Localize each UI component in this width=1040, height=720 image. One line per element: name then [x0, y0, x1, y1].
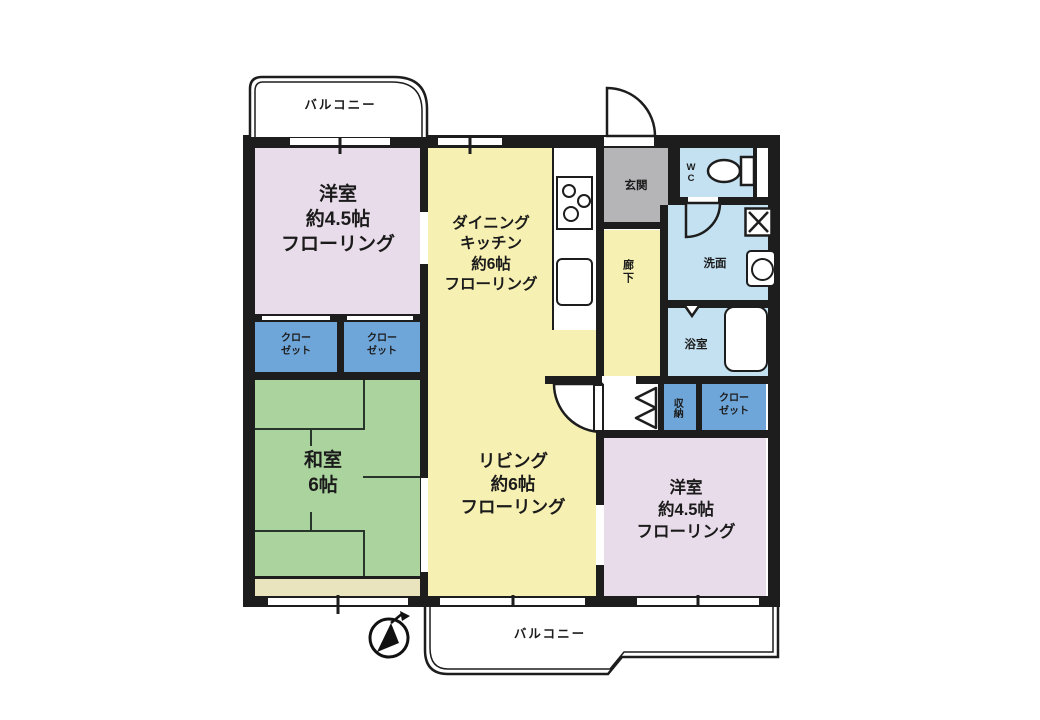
room-size: 約6帖	[428, 255, 554, 275]
kitchen-sink-icon	[556, 258, 593, 306]
living-door-panel	[593, 384, 604, 432]
wc-label: WC	[684, 155, 697, 191]
corridor-label: 廊下	[620, 250, 635, 294]
room-size: 約4.5帖	[608, 500, 764, 522]
closet-nw-opening	[262, 314, 330, 322]
bedroom-se-label: 洋室 約4.5帖 フローリング	[608, 478, 764, 543]
room-size: 6帖	[262, 473, 384, 498]
wall-closet-mid	[337, 314, 344, 378]
wall-entrance-step	[604, 222, 668, 229]
room-name: 洋室	[608, 478, 764, 500]
doorway-corridor-pocket	[602, 376, 636, 384]
closet-label-line: ゼット	[255, 345, 337, 358]
room-floor: フローリング	[608, 522, 764, 544]
closet-n-opening	[347, 314, 413, 322]
room-floor: フローリング	[433, 496, 593, 519]
wc-side-shaft	[757, 148, 768, 197]
basin-icon	[746, 250, 776, 287]
burner	[562, 184, 576, 198]
burner	[577, 194, 591, 208]
closet-label-line: ゼット	[702, 405, 766, 418]
room-size: 約4.5帖	[258, 207, 418, 232]
room-name: リビング	[433, 450, 593, 473]
washing-machine-icon	[744, 207, 773, 237]
toilet-icon	[702, 150, 758, 194]
room-name: キッチン	[428, 234, 554, 254]
wall-corridor-east	[660, 205, 668, 378]
closet-label-line: クロー	[702, 392, 766, 405]
room-name: 和室	[262, 448, 384, 473]
balcony-bottom-outline	[420, 600, 786, 686]
closet-e-label: クロー ゼット	[702, 392, 766, 418]
tatami-line	[310, 428, 312, 446]
sliding-door-bedroom-se	[596, 505, 604, 565]
wall-closetrow-bottom	[255, 372, 420, 380]
room-size: 約6帖	[433, 473, 593, 496]
tatami-line	[255, 530, 365, 532]
closet-nw-label: クロー ゼット	[255, 332, 337, 358]
basin-bowl	[751, 258, 774, 281]
entrance-label: 玄関	[604, 179, 668, 194]
outer-wall-left	[243, 135, 255, 607]
window-tick	[337, 595, 340, 614]
outer-wall-right	[768, 135, 780, 607]
closet-n-label: クロー ゼット	[344, 332, 420, 358]
floor-plan: { "plan": { "type": "apartment-floor-pla…	[0, 0, 1040, 720]
living-label: リビング 約6帖 フローリング	[433, 450, 593, 519]
closet-label-line: クロー	[255, 332, 337, 345]
window-tick	[469, 135, 472, 154]
balcony-top-label: バルコニー	[268, 97, 413, 114]
washroom-label: 洗面	[686, 257, 744, 272]
bath-door-icon	[683, 304, 701, 318]
sliding-door-japanese-room	[420, 478, 428, 572]
washroom-door-arc-icon	[684, 201, 724, 241]
window-kitchen-top	[438, 135, 502, 148]
room-floor: フローリング	[428, 275, 554, 295]
stove-icon	[556, 176, 593, 230]
room-name: 洋室	[258, 182, 418, 207]
closet-label-line: クロー	[344, 332, 420, 345]
tatami-line	[363, 380, 365, 428]
tatami-line	[310, 512, 312, 530]
japanese-room-label: 和室 6帖	[262, 448, 384, 498]
dining-kitchen-label: ダイニング キッチン 約6帖 フローリング	[428, 214, 554, 296]
storage-label: 収納	[670, 390, 683, 426]
window-japanese-room	[268, 596, 408, 607]
room-floor: フローリング	[258, 232, 418, 257]
room-name: ダイニング	[428, 214, 554, 234]
tatami-line	[363, 530, 365, 576]
bifold-door-icon	[632, 386, 659, 430]
wall-closets-bedroomse	[596, 430, 768, 438]
japanese-room-edge-strip	[255, 579, 420, 596]
closet-label-line: ゼット	[344, 345, 420, 358]
bathtub-icon	[724, 306, 768, 372]
burner	[563, 206, 579, 222]
compass-north-icon	[364, 610, 422, 664]
bedroom-nw-label: 洋室 約4.5帖 フローリング	[258, 182, 418, 257]
doorway-bedroom-nw	[420, 212, 428, 264]
entrance-door-arc-icon	[601, 84, 659, 142]
japanese-room-edge-line	[255, 576, 420, 579]
bathroom-label: 浴室	[672, 338, 720, 353]
balcony-bottom-label: バルコニー	[485, 626, 615, 643]
